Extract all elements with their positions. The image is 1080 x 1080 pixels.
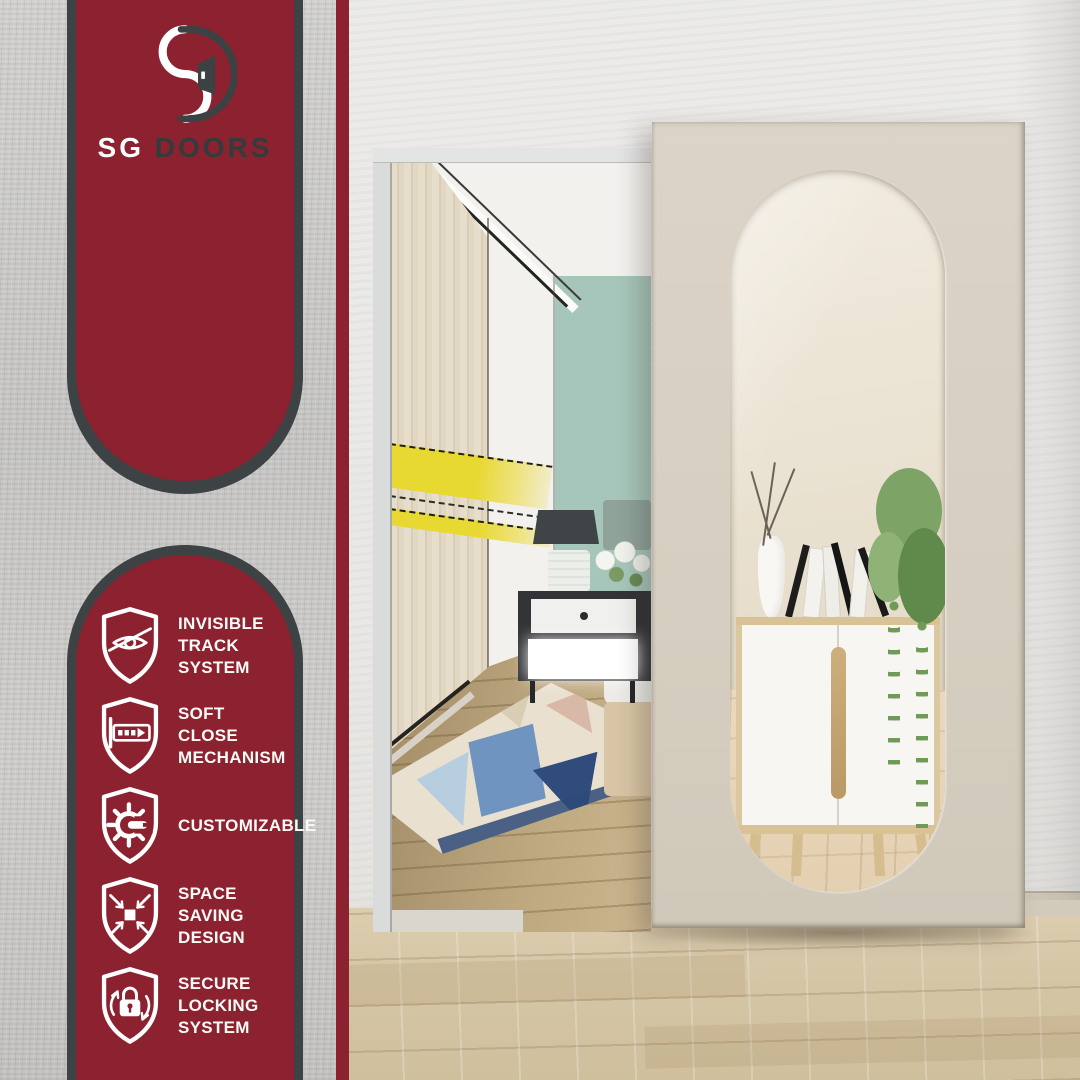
feature-label: SPACE SAVING DESIGN: [178, 883, 245, 949]
feature-line: SPACE: [178, 883, 245, 905]
eye-slash-shield-icon: [95, 606, 165, 686]
gear-wrench-shield-icon: [95, 786, 165, 866]
feature-invisible-track: INVISIBLE TRACK SYSTEM: [76, 601, 294, 691]
door-threshold: [373, 910, 523, 932]
mirror-sheen: [730, 170, 945, 892]
flower-bouquet: [594, 538, 650, 594]
nightstand-leg: [630, 681, 635, 703]
feature-line: SOFT: [178, 703, 286, 725]
features-panel: INVISIBLE TRACK SYSTEM SOFT CLOS: [76, 555, 294, 1080]
feature-space-saving: SPACE SAVING DESIGN: [76, 871, 294, 961]
poster-canvas: SG DOORS INVISIBLE TRACK SYSTEM: [0, 0, 1080, 1080]
drawer-knob: [580, 612, 588, 620]
nightstand-drawer: [531, 599, 636, 633]
feature-line: INVISIBLE: [178, 613, 264, 635]
compress-arrows-shield-icon: [95, 876, 165, 956]
feature-line: SYSTEM: [178, 1017, 258, 1039]
feature-label: SOFT CLOSE MECHANISM: [178, 703, 286, 769]
feature-secure-locking: SECURE LOCKING SYSTEM: [76, 961, 294, 1051]
divider-strip: [336, 0, 349, 1080]
brand-wordmark: SG DOORS: [98, 132, 273, 164]
door-jamb: [373, 148, 392, 932]
feature-soft-close: SOFT CLOSE MECHANISM: [76, 691, 294, 781]
feature-line: TRACK: [178, 635, 264, 657]
nightstand-leg: [530, 681, 535, 703]
nightstand: [518, 591, 651, 703]
feature-label: CUSTOMIZABLE: [178, 815, 316, 837]
sliding-door-panel: [652, 122, 1025, 928]
door-header: [373, 148, 651, 163]
sg-doors-logo-icon: [133, 22, 237, 126]
soft-close-rail-shield-icon: [95, 696, 165, 776]
feature-line: SAVING: [178, 905, 245, 927]
white-pot: [548, 550, 590, 592]
feature-line: SECURE: [178, 973, 258, 995]
feature-line: MECHANISM: [178, 747, 286, 769]
feature-line: DESIGN: [178, 927, 245, 949]
brand-banner: SG DOORS: [76, 0, 294, 481]
feature-line: SYSTEM: [178, 657, 264, 679]
brand-name-primary: SG: [98, 132, 144, 163]
table-lamp: [533, 510, 599, 544]
brand-name-secondary: DOORS: [155, 132, 273, 163]
lock-rotate-shield-icon: [95, 966, 165, 1046]
arched-mirror: [730, 170, 945, 892]
bed-blanket: [604, 702, 651, 796]
brand-banner-outline: SG DOORS: [67, 0, 303, 494]
feature-line: CLOSE: [178, 725, 286, 747]
doorway: [373, 148, 651, 932]
bedroom-photo: [345, 0, 1080, 1080]
feature-customizable: CUSTOMIZABLE: [76, 781, 294, 871]
feature-label: INVISIBLE TRACK SYSTEM: [178, 613, 264, 679]
nightstand-lit-drawer: [528, 639, 638, 679]
feature-label: SECURE LOCKING SYSTEM: [178, 973, 258, 1039]
features-panel-outline: INVISIBLE TRACK SYSTEM SOFT CLOS: [67, 545, 303, 1080]
feature-line: LOCKING: [178, 995, 258, 1017]
feature-line: CUSTOMIZABLE: [178, 815, 316, 837]
